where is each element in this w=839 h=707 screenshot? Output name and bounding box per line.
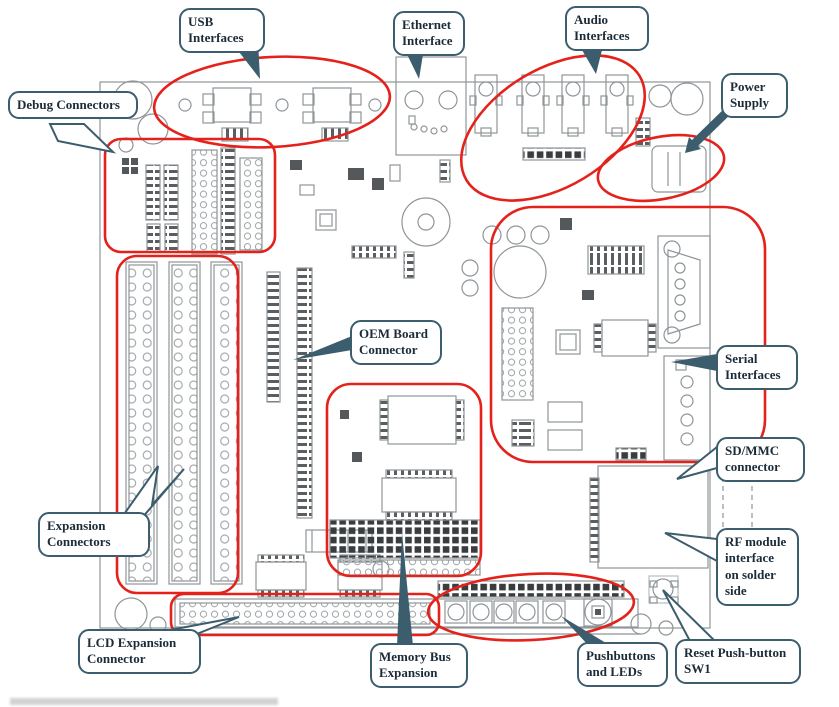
highlight-power-ellipse bbox=[592, 125, 729, 210]
board-diagram-figure: USB Interfaces Ethernet Interface Audio … bbox=[0, 0, 839, 707]
callout-pushbuttons-and-leds: Pushbuttons and LEDs bbox=[577, 642, 668, 687]
callout-reset-push-button: Reset Push-button SW1 bbox=[675, 639, 801, 684]
callout-memory-bus-expansion: Memory Bus Expansion bbox=[370, 643, 468, 688]
callout-expansion-connectors: Expansion Connectors bbox=[38, 512, 150, 557]
callout-serial-interfaces: Serial Interfaces bbox=[716, 345, 798, 390]
callout-lcd-expansion-connector: LCD Expansion Connector bbox=[78, 629, 201, 674]
callout-tail-rf bbox=[665, 533, 717, 561]
callout-sdmmc-connector: SD/MMC connector bbox=[716, 437, 805, 482]
callout-rf-module-interface: RF module interface on solder side bbox=[716, 528, 799, 606]
callout-oem-board-connector: OEM Board Connector bbox=[350, 320, 442, 365]
callout-power-supply: Power Supply bbox=[721, 73, 788, 118]
cropped-caption-text bbox=[10, 698, 278, 705]
callout-ethernet-interface: Ethernet Interface bbox=[393, 11, 465, 56]
memory-bus-art bbox=[330, 396, 480, 575]
serial-interfaces-art bbox=[483, 218, 710, 460]
ethernet-connector bbox=[396, 57, 466, 155]
callout-audio-interfaces: Audio Interfaces bbox=[565, 6, 649, 51]
callout-tail-reset bbox=[663, 590, 717, 643]
debug-connectors-art bbox=[122, 148, 262, 254]
audio-jacks bbox=[470, 75, 633, 160]
callout-tail-debug bbox=[50, 124, 113, 152]
callout-usb-interfaces: USB Interfaces bbox=[179, 8, 265, 53]
oem-connector-art bbox=[267, 268, 312, 518]
callout-debug-connectors: Debug Connectors bbox=[8, 91, 138, 119]
